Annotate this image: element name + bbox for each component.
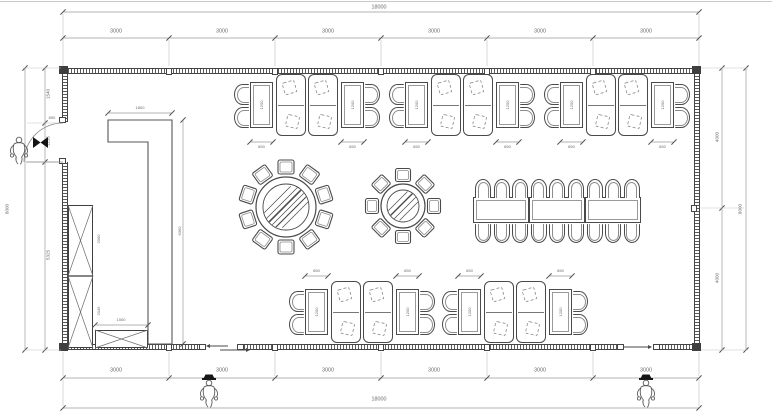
dim-label: 6360 bbox=[178, 227, 182, 236]
banquet-table-section bbox=[473, 197, 529, 223]
booth-divider bbox=[278, 105, 304, 106]
chair bbox=[587, 224, 603, 243]
chair bbox=[544, 84, 559, 105]
chair bbox=[442, 291, 457, 312]
low-cabinet bbox=[95, 330, 148, 348]
chair bbox=[442, 314, 457, 335]
chair bbox=[475, 224, 491, 243]
dim-label: 18000 bbox=[372, 5, 387, 10]
dim-label: 3000 bbox=[216, 29, 228, 34]
dim-label: 1200 bbox=[406, 308, 410, 317]
dim-label: 3000 bbox=[322, 368, 334, 373]
wall-column-marker bbox=[484, 344, 490, 351]
chair bbox=[494, 224, 510, 243]
chair bbox=[568, 179, 584, 198]
wall-left bbox=[62, 68, 68, 122]
chair bbox=[234, 107, 249, 128]
dim-label: 4000 bbox=[716, 273, 721, 283]
dim-label: 1200 bbox=[351, 101, 355, 110]
booth-divider bbox=[333, 312, 359, 313]
dim-label: 1500 bbox=[117, 318, 126, 322]
dim-label: 3000 bbox=[428, 368, 440, 373]
dim-label: 650 bbox=[413, 145, 420, 149]
chair bbox=[420, 314, 435, 335]
dim-label: 650 bbox=[504, 145, 511, 149]
chair bbox=[512, 224, 528, 243]
dim-label: 8000 bbox=[739, 204, 744, 214]
dim-label: 5325 bbox=[47, 250, 52, 260]
booth-divider bbox=[365, 312, 391, 313]
booth-divider bbox=[310, 105, 336, 106]
banquet-table-section bbox=[529, 197, 585, 223]
wall-corner-column bbox=[59, 343, 68, 351]
dim-label: 1200 bbox=[315, 308, 319, 317]
chair bbox=[389, 107, 404, 128]
dim-label: 1200 bbox=[559, 308, 563, 317]
chair bbox=[531, 179, 547, 198]
wall-column-marker bbox=[378, 344, 384, 351]
dim-label: 650 bbox=[258, 145, 265, 149]
booth-divider bbox=[588, 105, 614, 106]
dim-label: 8000 bbox=[6, 204, 11, 214]
wall-bottom bbox=[241, 344, 620, 350]
chair bbox=[365, 107, 380, 128]
booth-divider bbox=[486, 312, 512, 313]
dim-label: 890 bbox=[49, 116, 56, 120]
dim-label: 650 bbox=[349, 145, 356, 149]
wall-column-marker bbox=[272, 68, 278, 75]
chair bbox=[605, 179, 621, 198]
dim-label: 1200 bbox=[506, 101, 510, 110]
dim-label: 3000 bbox=[110, 368, 122, 373]
wall-column-marker bbox=[166, 344, 172, 351]
dim-label: 2000 bbox=[97, 235, 101, 244]
door-jamb bbox=[653, 344, 660, 350]
dim-label: 3000 bbox=[534, 368, 546, 373]
dim-label: 3000 bbox=[640, 29, 652, 34]
dim-label: 1200 bbox=[661, 101, 665, 110]
wall-column-marker bbox=[590, 344, 596, 351]
wall-column-marker bbox=[378, 68, 384, 75]
chair bbox=[389, 84, 404, 105]
wall-column-marker bbox=[691, 205, 697, 212]
chair bbox=[568, 224, 584, 243]
dim-label: 650 bbox=[568, 145, 575, 149]
chair bbox=[549, 224, 565, 243]
chair bbox=[605, 224, 621, 243]
dim-label: 3000 bbox=[534, 29, 546, 34]
chair bbox=[675, 84, 690, 105]
chair bbox=[512, 179, 528, 198]
chair bbox=[520, 84, 535, 105]
dim-label: 1540 bbox=[47, 89, 52, 99]
door-jamb bbox=[199, 344, 206, 350]
booth-divider bbox=[465, 105, 491, 106]
chair bbox=[289, 291, 304, 312]
dim-label: 1135 bbox=[47, 136, 52, 146]
dim-label: 1200 bbox=[468, 308, 472, 317]
plan-layer: 1800030003000300030003000300030003000300… bbox=[0, 0, 772, 414]
booth-divider bbox=[433, 105, 459, 106]
dim-label: 3000 bbox=[110, 29, 122, 34]
dim-label: 650 bbox=[404, 269, 411, 273]
dim-label: 650 bbox=[313, 269, 320, 273]
chair bbox=[573, 314, 588, 335]
chair bbox=[573, 291, 588, 312]
door-jamb bbox=[59, 158, 66, 164]
chair bbox=[624, 179, 640, 198]
chair bbox=[289, 314, 304, 335]
dim-label: 3000 bbox=[322, 29, 334, 34]
dim-label: 2045 bbox=[97, 307, 101, 316]
dim-label: 650 bbox=[466, 269, 473, 273]
chair bbox=[675, 107, 690, 128]
tall-cabinet bbox=[68, 205, 93, 348]
dim-label: 3000 bbox=[216, 368, 228, 373]
chair bbox=[475, 179, 491, 198]
chair bbox=[494, 179, 510, 198]
dim-label: 1200 bbox=[570, 101, 574, 110]
booth-divider bbox=[518, 312, 544, 313]
chair bbox=[234, 84, 249, 105]
dim-label: 1800 bbox=[136, 106, 145, 110]
dim-label: 18000 bbox=[372, 397, 387, 402]
door-jamb bbox=[59, 117, 66, 123]
dim-label: 4000 bbox=[716, 132, 721, 142]
dim-label: 3000 bbox=[640, 368, 652, 373]
dim-label: 650 bbox=[659, 145, 666, 149]
wall-corner-column bbox=[59, 66, 68, 74]
chair bbox=[587, 179, 603, 198]
booth-divider bbox=[620, 105, 646, 106]
wall-column-marker bbox=[272, 344, 278, 351]
door-jamb bbox=[617, 344, 624, 350]
dim-label: 1200 bbox=[415, 101, 419, 110]
door-jamb bbox=[237, 344, 244, 350]
dim-label: 650 bbox=[557, 269, 564, 273]
wall-corner-column bbox=[692, 66, 701, 74]
floor-plan-canvas: 1800030003000300030003000300030003000300… bbox=[0, 0, 772, 414]
chair bbox=[365, 84, 380, 105]
wall-corner-column bbox=[692, 343, 701, 351]
chair bbox=[624, 224, 640, 243]
chair bbox=[531, 224, 547, 243]
dim-label: 1200 bbox=[260, 101, 264, 110]
chair bbox=[549, 179, 565, 198]
banquet-table-section bbox=[585, 197, 641, 223]
wall-column-marker bbox=[166, 68, 172, 75]
chair bbox=[420, 291, 435, 312]
chair bbox=[520, 107, 535, 128]
dim-label: 3000 bbox=[428, 29, 440, 34]
page-edge-line bbox=[0, 1, 772, 2]
chair bbox=[544, 107, 559, 128]
